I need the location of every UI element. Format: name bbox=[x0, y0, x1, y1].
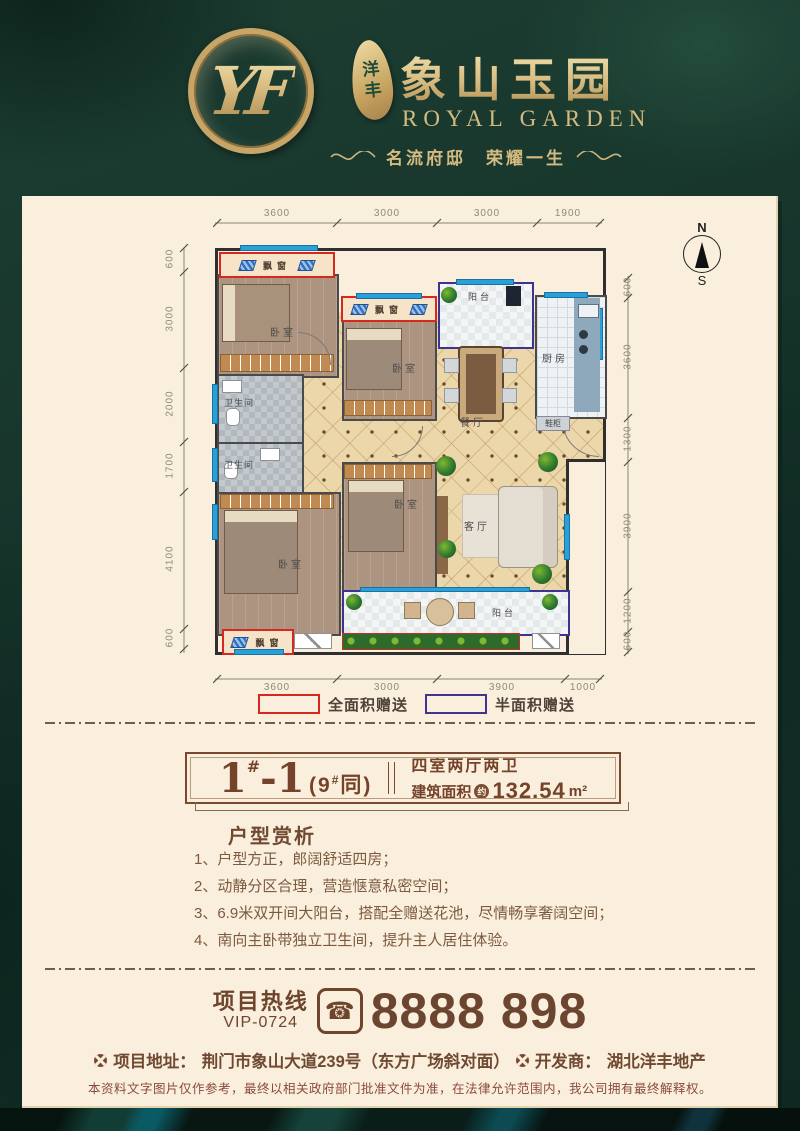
plant-icon bbox=[542, 594, 558, 610]
badge-char-top: 洋 bbox=[361, 59, 380, 80]
approx-circle-icon: 约 bbox=[474, 784, 489, 799]
chair-icon bbox=[502, 388, 517, 403]
wardrobe-icon bbox=[220, 494, 334, 509]
bullet-ring-icon bbox=[516, 1054, 529, 1067]
hotline-block: 项目热线 VIP-0724 ☎ 8888 898 bbox=[22, 982, 778, 1040]
window-bar bbox=[360, 587, 530, 592]
dim-right-1: 600 bbox=[623, 265, 634, 309]
cushion-icon bbox=[231, 637, 250, 648]
legend-label-full-area: 全面积赠送 bbox=[328, 694, 408, 715]
brand-tagline: 名流府邸 荣耀一生 bbox=[386, 144, 566, 169]
dim-top-4: 1900 bbox=[555, 208, 581, 219]
hotline-label: 项目热线 bbox=[213, 990, 309, 1014]
chair-icon bbox=[444, 388, 459, 403]
dim-bottom-4: 1000 bbox=[570, 682, 596, 693]
badge-char-bottom: 丰 bbox=[364, 80, 383, 101]
window-bar bbox=[240, 245, 318, 251]
dim-right-2: 3600 bbox=[623, 335, 634, 379]
bay-window-label: 飘窗 bbox=[263, 259, 291, 272]
flourish-right-icon bbox=[576, 151, 622, 163]
bay-window-label: 飘窗 bbox=[375, 303, 403, 316]
window-bar bbox=[564, 514, 570, 560]
window-bar bbox=[212, 504, 218, 540]
dim-top-1: 3600 bbox=[264, 208, 290, 219]
address-row: 项目地址：荆门市象山大道239号（东方广场斜对面） 开发商：湖北洋丰地产 bbox=[22, 1048, 778, 1072]
dim-left-2: 3000 bbox=[165, 297, 176, 341]
cushion-icon bbox=[350, 304, 369, 315]
area-value: 132.54 bbox=[492, 778, 565, 804]
dim-top-3: 3000 bbox=[474, 208, 500, 219]
flourish-left-icon bbox=[330, 151, 376, 163]
plant-icon bbox=[346, 594, 362, 610]
brand-title: 象山玉园 bbox=[400, 44, 660, 110]
compass-circle-icon bbox=[683, 235, 721, 273]
compass-needle-icon bbox=[695, 242, 709, 268]
stove-burner-icon bbox=[579, 330, 588, 339]
room-label-kitchen: 厨房 bbox=[542, 350, 568, 365]
dim-bottom-2: 3000 bbox=[374, 682, 400, 693]
chair-icon bbox=[444, 358, 459, 373]
plant-icon bbox=[538, 452, 558, 472]
toilet-icon bbox=[226, 408, 240, 426]
room-label-dining: 餐厅 bbox=[460, 414, 486, 429]
analysis-item: 4、南向主卧带独立卫生间，提升主人居住体验。 bbox=[194, 927, 674, 954]
kitchen-sink-icon bbox=[578, 304, 599, 318]
plant-icon bbox=[436, 456, 456, 476]
footer-strip bbox=[0, 1108, 800, 1131]
dining-table-icon bbox=[458, 346, 504, 422]
window-bar bbox=[212, 384, 218, 424]
compass: N S bbox=[672, 220, 732, 294]
cushion-icon bbox=[297, 260, 316, 271]
water-heater-icon bbox=[506, 286, 521, 306]
analysis-list: 1、户型方正，郎阔舒适四房； 2、动静分区合理，营造惬意私密空间； 3、6.9米… bbox=[194, 846, 674, 954]
developer-value: 湖北洋丰地产 bbox=[607, 1048, 706, 1072]
dim-left-5: 4100 bbox=[165, 537, 176, 581]
wall-segment bbox=[566, 459, 603, 462]
flower-bed bbox=[342, 633, 520, 650]
analysis-item: 1、户型方正，郎阔舒适四房； bbox=[194, 846, 674, 873]
cushion-icon bbox=[409, 304, 428, 315]
brand-subtitle: ROYAL GARDEN bbox=[402, 106, 662, 132]
room-label-bedroom: 卧室 bbox=[278, 556, 304, 571]
wardrobe-icon bbox=[344, 464, 432, 479]
room-label-balcony: 阳台 bbox=[468, 290, 492, 303]
dim-left-6: 600 bbox=[165, 616, 176, 660]
brand-monogram: YF bbox=[205, 52, 297, 130]
dim-bottom-1: 3600 bbox=[264, 682, 290, 693]
room-label-bath: 卫生间 bbox=[224, 458, 254, 471]
dim-left-3: 2000 bbox=[165, 382, 176, 426]
bed-icon bbox=[348, 480, 404, 552]
legend-label-half-area: 半面积赠送 bbox=[495, 694, 575, 715]
analysis-item: 2、动静分区合理，营造惬意私密空间； bbox=[194, 873, 674, 900]
window-bar bbox=[356, 293, 422, 299]
ac-unit-icon bbox=[294, 633, 332, 649]
room-label-bedroom: 卧室 bbox=[270, 324, 296, 339]
unit-number: 1#-1 (9#同) bbox=[219, 757, 373, 799]
divider-line bbox=[45, 722, 757, 724]
phone-icon: ☎ bbox=[317, 988, 363, 1034]
compass-south-label: S bbox=[698, 273, 707, 288]
flyer-card: 3600 3000 3000 1900 600 3000 2000 1700 4… bbox=[22, 196, 778, 1108]
sink-icon bbox=[222, 380, 242, 393]
compass-north-label: N bbox=[697, 220, 706, 235]
divider-line bbox=[45, 968, 757, 970]
plant-icon bbox=[438, 540, 456, 558]
unit-rooms: 四室两厅两卫 bbox=[411, 752, 519, 776]
room-label-living: 客厅 bbox=[464, 518, 490, 533]
tv-cabinet-icon bbox=[437, 496, 448, 574]
legend-swatch-half-area bbox=[425, 694, 487, 714]
hotline-vip: VIP-0724 bbox=[223, 1014, 298, 1032]
bay-window-label: 飘窗 bbox=[255, 636, 283, 649]
analysis-heading: 户型赏析 bbox=[228, 820, 316, 849]
cushion-icon bbox=[238, 260, 257, 271]
patio-chair-icon bbox=[458, 602, 475, 619]
area-unit: m² bbox=[569, 783, 587, 800]
stove-burner-icon bbox=[579, 345, 588, 354]
bed-icon bbox=[346, 328, 402, 390]
dim-right-6: 600 bbox=[623, 619, 634, 663]
bay-window-mid: 飘窗 bbox=[341, 296, 437, 322]
hotline-labels: 项目热线 VIP-0724 bbox=[213, 990, 309, 1032]
plant-icon bbox=[441, 287, 457, 303]
unit-number-rest: -1 bbox=[260, 755, 304, 802]
window-bar bbox=[212, 448, 218, 482]
sofa-icon bbox=[498, 486, 558, 568]
legend-swatch-full-area bbox=[258, 694, 320, 714]
floor-plan: 3600 3000 3000 1900 600 3000 2000 1700 4… bbox=[160, 212, 672, 712]
dim-bottom-3: 3900 bbox=[489, 682, 515, 693]
patio-table-icon bbox=[426, 598, 454, 626]
patio-chair-icon bbox=[404, 602, 421, 619]
disclaimer: 本资料文字图片仅作参考，最终以相关政府部门批准文件为准，在法律允许范围内，我公司… bbox=[22, 1078, 778, 1097]
room-label-balcony: 阳台 bbox=[492, 606, 516, 619]
plaque-divider bbox=[388, 762, 395, 794]
developer-label: 开发商： bbox=[535, 1048, 601, 1072]
analysis-item: 3、6.9米双开间大阳台，搭配全赠送花池，尽情畅享奢阔空间； bbox=[194, 900, 674, 927]
room-label-bedroom: 卧室 bbox=[392, 360, 418, 375]
balcony-south bbox=[342, 590, 570, 636]
unit-info: 四室两厅两卫 建筑面积 约 132.54 m² bbox=[411, 752, 587, 804]
chair-icon bbox=[502, 358, 517, 373]
unit-note-close: 同) bbox=[340, 774, 372, 797]
dim-right-3: 1300 bbox=[623, 417, 634, 461]
unit-note-open: (9 bbox=[309, 774, 332, 797]
sink-icon bbox=[260, 448, 280, 461]
unit-plaque: 1#-1 (9#同) 四室两厅两卫 建筑面积 约 132.54 m² bbox=[185, 752, 621, 804]
plant-icon bbox=[532, 564, 552, 584]
shoe-cabinet: 鞋柜 bbox=[536, 416, 570, 431]
unit-number-hash: # bbox=[247, 757, 260, 776]
ac-unit-icon bbox=[532, 633, 560, 649]
bullet-ring-icon bbox=[94, 1054, 107, 1067]
plan-mask bbox=[569, 462, 605, 654]
hotline-number: 8888 898 bbox=[371, 982, 588, 1040]
dim-top-2: 3000 bbox=[374, 208, 400, 219]
wardrobe-icon bbox=[344, 400, 432, 416]
address-label: 项目地址： bbox=[113, 1048, 196, 1072]
bed-icon bbox=[224, 510, 298, 594]
room-label-bath: 卫生间 bbox=[224, 396, 254, 409]
unit-note: (9#同) bbox=[309, 774, 372, 797]
room-label-bedroom: 卧室 bbox=[394, 496, 420, 511]
window-bar bbox=[456, 279, 514, 285]
unit-area: 建筑面积 约 132.54 m² bbox=[411, 778, 587, 804]
unit-number-main: 1 bbox=[219, 755, 247, 802]
dimension-ruler-left bbox=[176, 244, 192, 656]
brand-leaf-badge-icon: 洋 丰 bbox=[348, 38, 396, 122]
plaque-shadow bbox=[195, 802, 629, 811]
brand-logo: YF bbox=[188, 28, 314, 154]
bay-window-nw: 飘窗 bbox=[219, 252, 335, 278]
brand-tagline-row: 名流府邸 荣耀一生 bbox=[330, 144, 660, 169]
address-value: 荆门市象山大道239号（东方广场斜对面） bbox=[202, 1048, 510, 1072]
dim-right-4: 3900 bbox=[623, 504, 634, 548]
dim-left-1: 600 bbox=[165, 237, 176, 281]
window-bar bbox=[234, 649, 284, 655]
flyer-page: YF 洋 丰 象山玉园 ROYAL GARDEN 名流府邸 荣耀一生 bbox=[0, 0, 800, 1131]
area-label: 建筑面积 bbox=[411, 781, 471, 802]
dim-left-4: 1700 bbox=[165, 444, 176, 488]
